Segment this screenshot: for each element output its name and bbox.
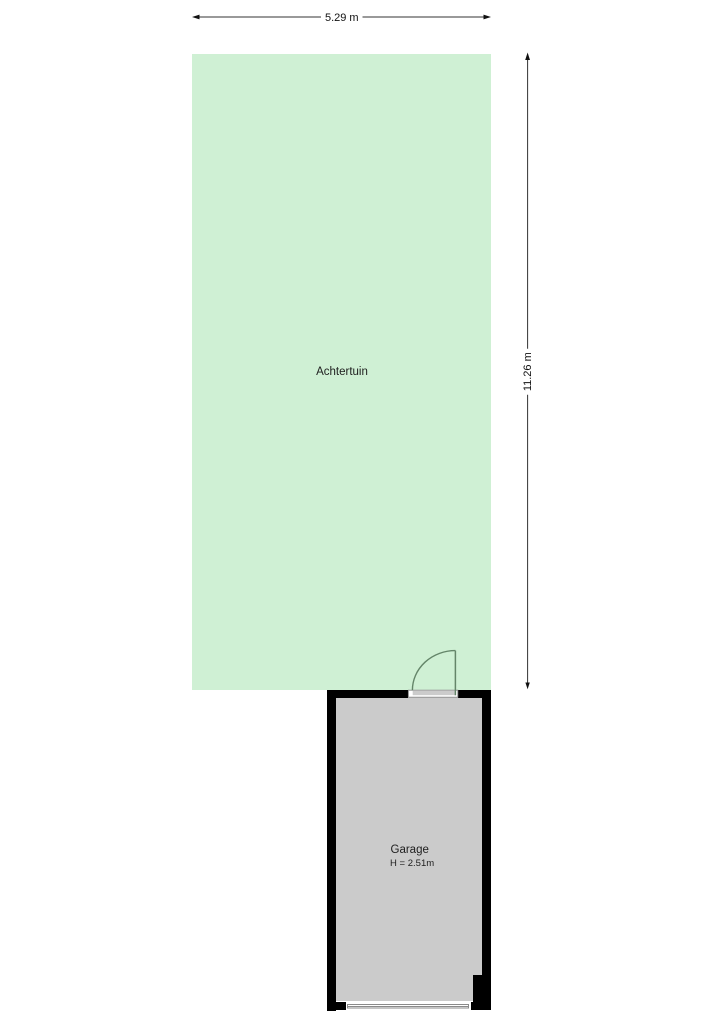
svg-text:5.29 m: 5.29 m	[325, 12, 359, 24]
svg-text:11.26 m: 11.26 m	[522, 352, 534, 391]
